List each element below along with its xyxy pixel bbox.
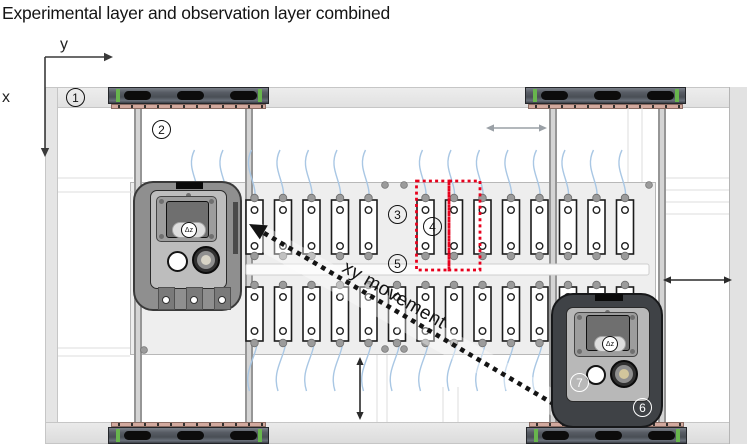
carriage-body (526, 427, 687, 444)
marker-6: 6 (633, 398, 652, 417)
carriage-end-mark (533, 89, 537, 102)
rail-carriage-top-right (525, 87, 686, 109)
rail-carriage-top-left (108, 87, 269, 109)
carriage-end-mark (258, 429, 262, 442)
axis-y-label: y (60, 36, 68, 54)
axis-x-label: x (2, 89, 10, 107)
camera-mount-prong (214, 287, 231, 310)
carriage-strip (528, 104, 683, 109)
rail-carriage-bottom-left (108, 422, 269, 444)
carriage-slider (595, 431, 622, 440)
carriage-body (108, 427, 269, 444)
carriage-end-mark (676, 429, 680, 442)
marker-3: 3 (388, 205, 407, 224)
gray-double-arrow (486, 124, 547, 131)
screw (159, 199, 164, 204)
camera-mount-prong (186, 287, 203, 310)
delta-z-badge: Δz (594, 336, 626, 352)
marker-1: 1 (66, 88, 85, 107)
carriage-slider (230, 91, 257, 100)
carriage-body (525, 87, 686, 104)
carriage-slider (648, 431, 675, 440)
figure-canvas: Experimental layer and observation layer… (0, 0, 750, 444)
mount-hole (218, 296, 226, 304)
carriage-slider (124, 91, 151, 100)
observation-camera-left: Δz (133, 181, 242, 311)
camera-mount-prong (158, 287, 175, 310)
carriage-body (108, 87, 269, 104)
carriage-slider (594, 91, 621, 100)
delta-z-circle: Δz (602, 336, 618, 352)
marker-4: 4 (423, 217, 442, 236)
carriage-end-mark (258, 89, 262, 102)
delta-z-badge: Δz (172, 222, 206, 238)
camera-top-bar (595, 294, 623, 301)
vertical-rail-left-2 (245, 104, 253, 430)
lens-core (201, 255, 211, 265)
mount-hole (162, 296, 170, 304)
carriage-end-mark (534, 429, 538, 442)
lens-ring (615, 365, 633, 383)
carriage-slider (177, 431, 204, 440)
marker-7: 7 (570, 373, 589, 392)
axis-y-arrowhead (104, 53, 113, 61)
screw (630, 349, 635, 354)
mount-hole (190, 296, 198, 304)
lens-core (619, 369, 629, 379)
carriage-end-mark (116, 89, 120, 102)
lens-ring (197, 251, 215, 269)
camera-top-bar (176, 182, 203, 189)
carriage-end-mark (116, 429, 120, 442)
screw (577, 349, 582, 354)
screw (209, 234, 214, 239)
carriage-slider (542, 431, 569, 440)
camera-lens-small (167, 251, 188, 272)
delta-z-circle: Δz (181, 222, 197, 238)
camera-side-clip (233, 202, 238, 254)
marker-5: 5 (388, 254, 407, 273)
carriage-strip (111, 104, 266, 109)
carriage-slider (541, 91, 568, 100)
marker-2: 2 (152, 120, 171, 139)
camera-lens-big (610, 360, 638, 388)
screw (630, 315, 635, 320)
carriage-slider (647, 91, 674, 100)
camera-lens-big (192, 246, 220, 274)
carriage-end-mark (675, 89, 679, 102)
frame-bar-right (729, 87, 747, 444)
camera-front-panel: Δz (150, 190, 227, 289)
screw (577, 315, 582, 320)
carriage-slider (177, 91, 204, 100)
screw (209, 199, 214, 204)
camera-lens-small (586, 365, 606, 385)
screw (159, 234, 164, 239)
delta-z-label: Δz (185, 227, 193, 234)
figure-title: Experimental layer and observation layer… (2, 3, 390, 24)
carriage-slider (124, 431, 151, 440)
carriage-slider (230, 431, 257, 440)
frame-bar-left (45, 87, 58, 444)
black-double-arrow-horizontal (663, 276, 732, 283)
delta-z-label: Δz (606, 341, 614, 348)
black-double-arrow-vertical (356, 357, 363, 420)
